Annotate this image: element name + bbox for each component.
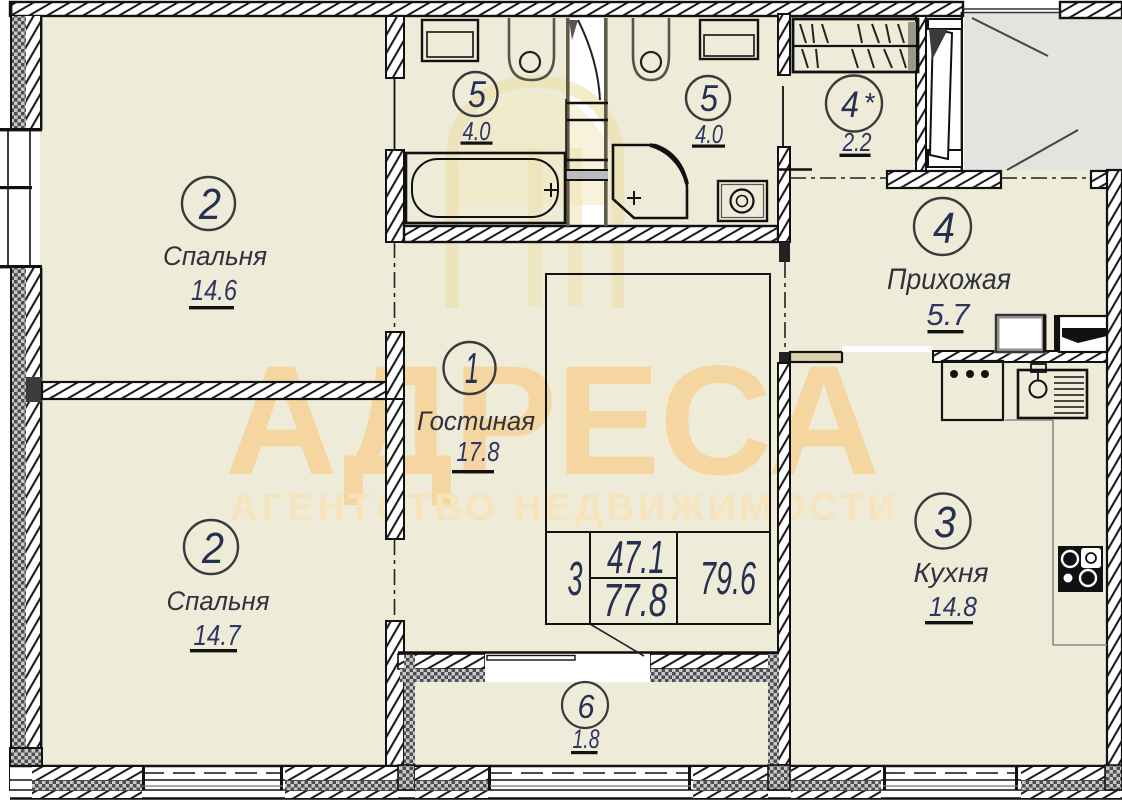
svg-text:2.2: 2.2 — [842, 127, 872, 157]
svg-text:79.6: 79.6 — [700, 552, 756, 604]
svg-text:77.8: 77.8 — [603, 574, 667, 626]
svg-text:4: 4 — [933, 204, 955, 253]
svg-text:Прихожая: Прихожая — [887, 263, 1011, 296]
svg-text:Спальня: Спальня — [167, 586, 270, 616]
svg-text:14.7: 14.7 — [194, 620, 243, 652]
svg-text:3: 3 — [934, 498, 956, 547]
svg-text:14.6: 14.6 — [191, 275, 238, 307]
svg-text:4: 4 — [841, 84, 859, 125]
svg-text:14.8: 14.8 — [929, 591, 977, 622]
svg-text:Кухня: Кухня — [914, 557, 989, 588]
svg-text:2: 2 — [201, 524, 224, 573]
svg-text:АГЕНТСТВО НЕДВИЖИМОСТИ: АГЕНТСТВО НЕДВИЖИМОСТИ — [230, 487, 895, 529]
svg-text:Спальня: Спальня — [163, 241, 267, 271]
svg-text:5.7: 5.7 — [927, 297, 972, 332]
svg-text:3: 3 — [568, 553, 583, 606]
svg-text:17.8: 17.8 — [457, 436, 500, 467]
svg-text:1: 1 — [465, 344, 479, 393]
svg-text:1.8: 1.8 — [573, 724, 600, 754]
svg-text:5: 5 — [468, 74, 486, 115]
svg-text:Гостиная: Гостиная — [417, 406, 535, 436]
svg-text:*: * — [864, 87, 876, 118]
svg-text:6: 6 — [578, 688, 596, 725]
svg-text:2: 2 — [198, 180, 221, 229]
svg-text:5: 5 — [700, 78, 718, 119]
